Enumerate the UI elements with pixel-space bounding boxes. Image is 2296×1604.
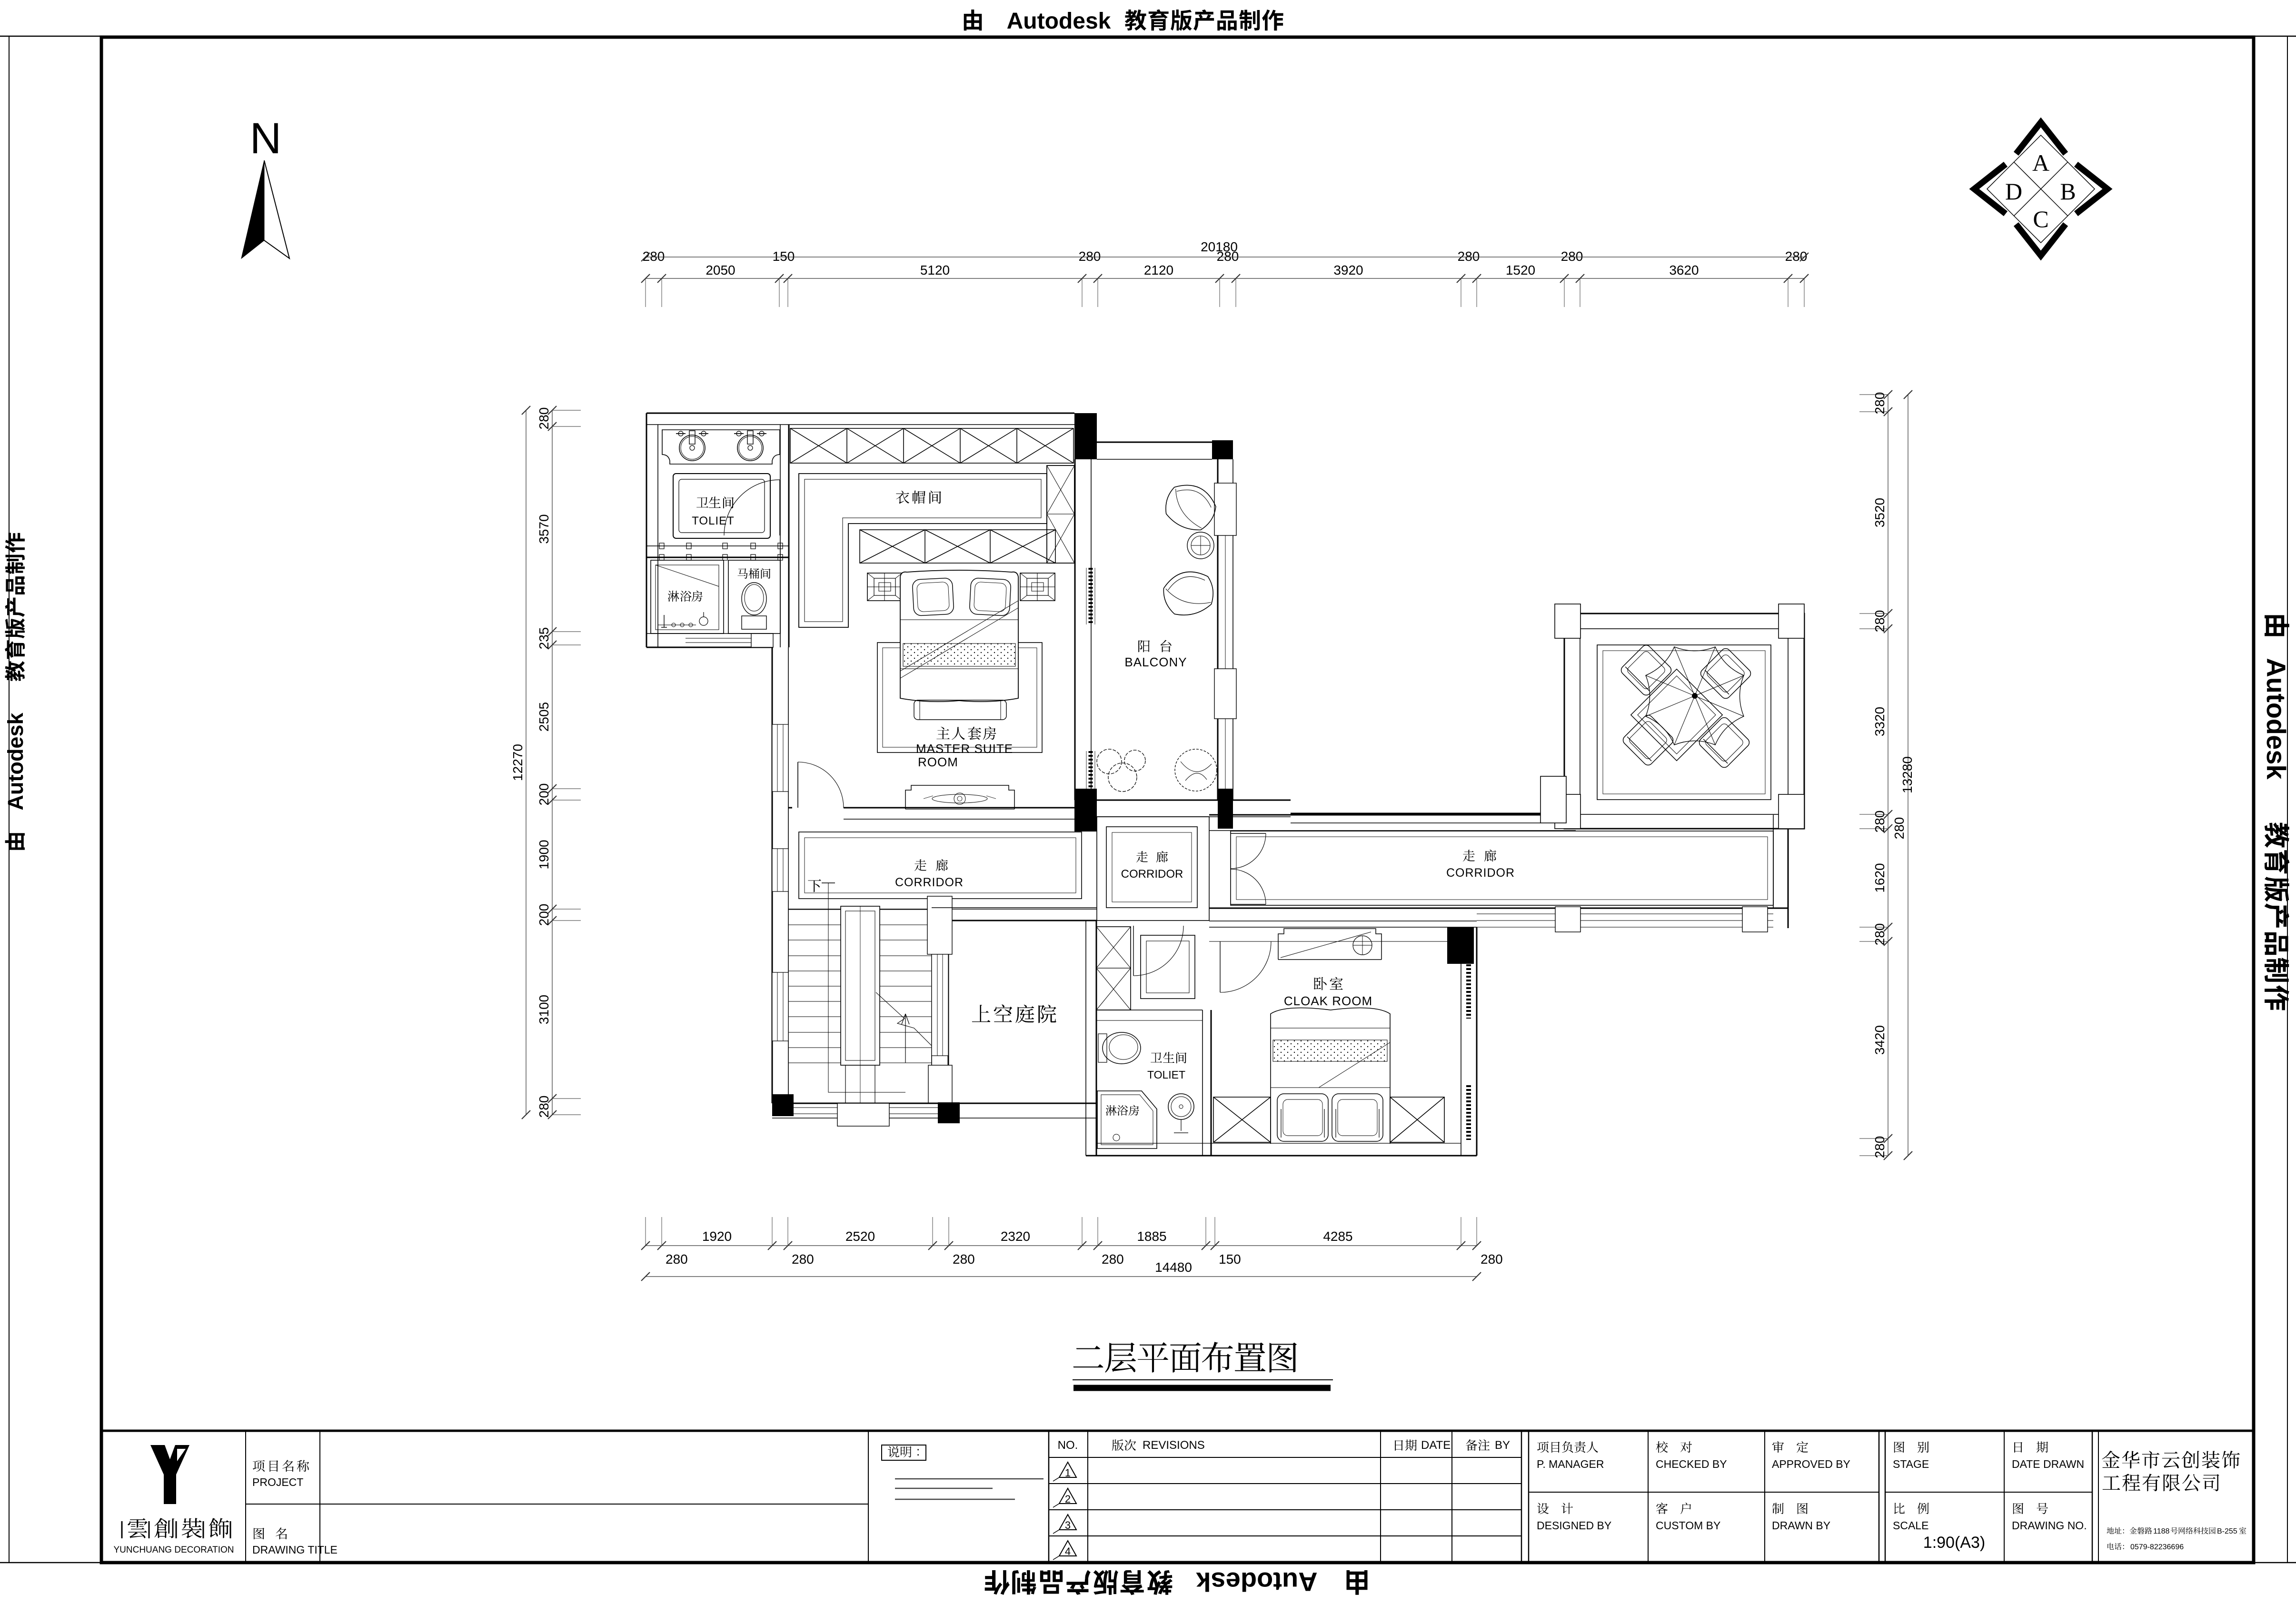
svg-text:MASTER SUITE: MASTER SUITE — [916, 742, 1013, 756]
svg-text:Autodesk: Autodesk — [1196, 1567, 1318, 1597]
svg-text:2050: 2050 — [706, 263, 735, 277]
svg-text:DRAWING TITLE: DRAWING TITLE — [252, 1544, 338, 1556]
svg-text:DATE DRAWN: DATE DRAWN — [2012, 1458, 2084, 1470]
svg-text:STAGE: STAGE — [1893, 1458, 1929, 1470]
svg-text:2120: 2120 — [1144, 263, 1173, 277]
svg-text:CORRIDOR: CORRIDOR — [1121, 868, 1183, 881]
svg-text:3620: 3620 — [1669, 263, 1699, 277]
svg-text:200: 200 — [537, 783, 551, 806]
svg-text:2320: 2320 — [1001, 1229, 1030, 1244]
svg-text:280: 280 — [1561, 249, 1583, 264]
svg-text:12270: 12270 — [510, 744, 525, 781]
svg-text:280: 280 — [1872, 923, 1887, 946]
svg-text:D: D — [2005, 178, 2022, 205]
svg-text:BY: BY — [1495, 1439, 1510, 1452]
svg-text:280: 280 — [537, 1096, 551, 1118]
svg-text:3420: 3420 — [1872, 1025, 1887, 1055]
svg-text:1520: 1520 — [1506, 263, 1535, 277]
svg-text:P. MANAGER: P. MANAGER — [1537, 1458, 1604, 1470]
svg-text:4285: 4285 — [1323, 1229, 1352, 1244]
svg-text:280: 280 — [1872, 610, 1887, 633]
svg-text:1: 1 — [1065, 1467, 1071, 1479]
svg-text:20180: 20180 — [1201, 239, 1238, 254]
svg-text:3: 3 — [1065, 1519, 1071, 1531]
svg-text:DRAWING NO.: DRAWING NO. — [2012, 1519, 2087, 1532]
svg-text:CHECKED BY: CHECKED BY — [1656, 1458, 1727, 1470]
svg-text:REVISIONS: REVISIONS — [1143, 1439, 1205, 1452]
svg-text:13280: 13280 — [1900, 756, 1915, 793]
svg-text:DRAWN BY: DRAWN BY — [1772, 1519, 1830, 1532]
svg-text:150: 150 — [773, 249, 795, 264]
svg-text:TOLIET: TOLIET — [692, 515, 735, 527]
svg-text:235: 235 — [537, 627, 551, 650]
svg-text:0579-82236696: 0579-82236696 — [2130, 1543, 2184, 1551]
svg-text:A: A — [2032, 149, 2049, 176]
svg-text:3570: 3570 — [537, 514, 551, 544]
svg-text:280: 280 — [1481, 1252, 1503, 1267]
svg-text:280: 280 — [1079, 249, 1101, 264]
svg-text:SCALE: SCALE — [1893, 1519, 1928, 1532]
svg-text:280: 280 — [1872, 392, 1887, 415]
svg-text:1188: 1188 — [2153, 1527, 2170, 1535]
svg-text:3100: 3100 — [537, 995, 551, 1024]
svg-text:280: 280 — [666, 1252, 688, 1267]
svg-text:1:90(A3): 1:90(A3) — [1923, 1534, 1985, 1552]
svg-text:NO.: NO. — [1058, 1439, 1078, 1452]
svg-text::: : — [916, 1444, 920, 1458]
svg-text:5120: 5120 — [920, 263, 950, 277]
svg-text:TOLIET: TOLIET — [1147, 1069, 1185, 1081]
svg-text:150: 150 — [1219, 1252, 1241, 1267]
svg-text:Autodesk: Autodesk — [2261, 658, 2291, 780]
svg-text:B: B — [2060, 178, 2076, 205]
svg-text:280: 280 — [1872, 1136, 1887, 1158]
svg-text:2: 2 — [1065, 1493, 1071, 1505]
svg-text:YUNCHUANG DECORATION: YUNCHUANG DECORATION — [114, 1545, 234, 1555]
svg-text:280: 280 — [1102, 1252, 1124, 1267]
svg-text:Autodesk: Autodesk — [1007, 9, 1111, 34]
svg-text:C: C — [2033, 206, 2048, 232]
svg-text:DESIGNED BY: DESIGNED BY — [1537, 1519, 1611, 1532]
svg-text:Autodesk: Autodesk — [3, 713, 28, 811]
svg-text:3520: 3520 — [1872, 498, 1887, 527]
svg-text:14480: 14480 — [1155, 1260, 1192, 1275]
svg-text:2505: 2505 — [537, 702, 551, 732]
svg-text:280: 280 — [537, 407, 551, 430]
svg-text:2520: 2520 — [845, 1229, 875, 1244]
svg-text:APPROVED BY: APPROVED BY — [1772, 1458, 1850, 1470]
svg-text:4: 4 — [1065, 1545, 1071, 1557]
svg-text:1885: 1885 — [1137, 1229, 1166, 1244]
svg-text:3320: 3320 — [1872, 707, 1887, 736]
svg-text:1920: 1920 — [702, 1229, 732, 1244]
svg-text:CORRIDOR: CORRIDOR — [1446, 866, 1515, 880]
svg-text:1620: 1620 — [1872, 863, 1887, 892]
svg-text:280: 280 — [1892, 817, 1907, 840]
svg-text:PROJECT: PROJECT — [252, 1476, 303, 1488]
svg-text:CORRIDOR: CORRIDOR — [895, 876, 964, 889]
svg-text:3920: 3920 — [1333, 263, 1363, 277]
svg-text:N: N — [250, 114, 281, 163]
svg-text:280: 280 — [792, 1252, 814, 1267]
svg-text:BALCONY: BALCONY — [1124, 655, 1187, 669]
svg-text:ROOM: ROOM — [918, 755, 958, 769]
svg-text:B-255: B-255 — [2217, 1527, 2237, 1535]
svg-text:200: 200 — [537, 904, 551, 926]
svg-text:DATE: DATE — [1421, 1439, 1451, 1452]
svg-text:1900: 1900 — [537, 840, 551, 869]
svg-text:280: 280 — [1872, 811, 1887, 833]
svg-text:280: 280 — [1458, 249, 1480, 264]
svg-text:280: 280 — [1785, 249, 1808, 264]
svg-text:CUSTOM BY: CUSTOM BY — [1656, 1519, 1720, 1532]
svg-text:280: 280 — [953, 1252, 975, 1267]
svg-text:CLOAK ROOM: CLOAK ROOM — [1284, 994, 1372, 1008]
